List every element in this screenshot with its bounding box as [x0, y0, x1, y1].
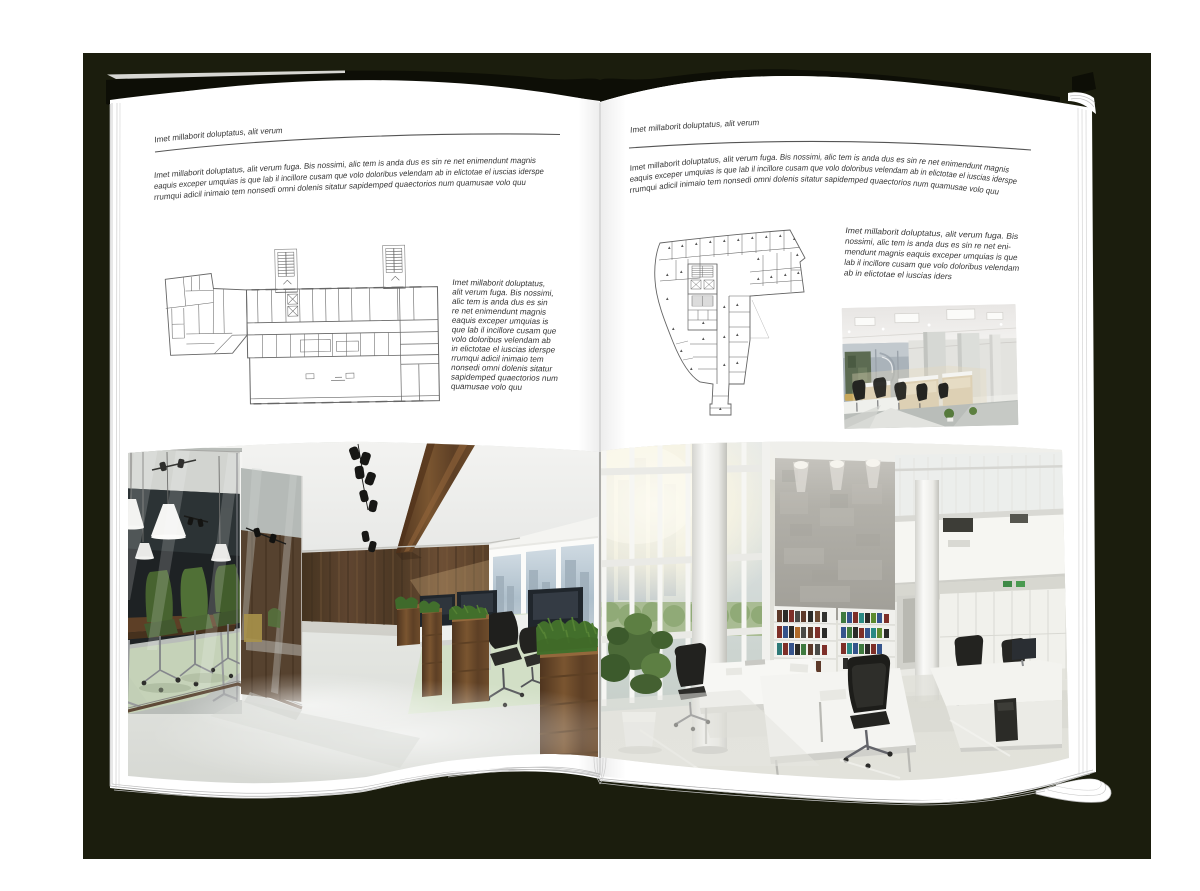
svg-text:quamusae volo quu: quamusae volo quu: [450, 382, 523, 392]
